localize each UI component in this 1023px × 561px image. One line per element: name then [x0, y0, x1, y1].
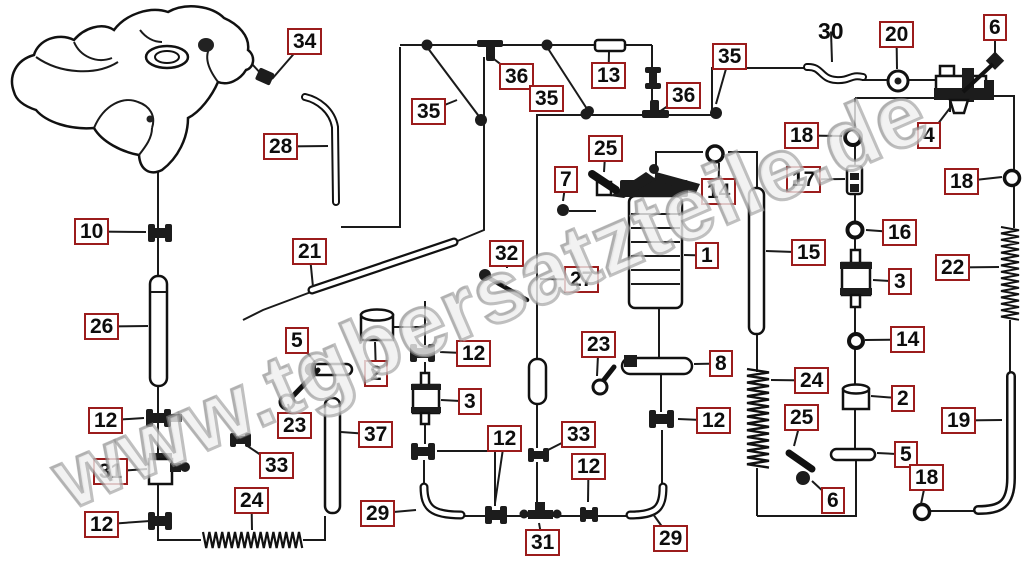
grommet-12-col-lower	[411, 443, 435, 460]
part-17	[847, 166, 862, 194]
tube-37	[325, 398, 340, 513]
spring-24-right	[747, 369, 769, 468]
union-31-left	[149, 453, 190, 484]
check-fitting	[645, 67, 661, 89]
elbow-29-left	[424, 487, 461, 515]
screw-32	[479, 269, 527, 300]
tank-cap	[146, 46, 188, 68]
bushing-2-right	[843, 385, 869, 410]
spring-22	[1001, 227, 1019, 320]
tee-31-center	[520, 502, 562, 519]
grommet-12-col-upper	[410, 344, 435, 362]
band-8	[622, 355, 692, 374]
parts-diagram: 3428102612311224332321523712312293133122…	[0, 0, 1023, 561]
ring-14	[849, 334, 863, 348]
ring-20	[888, 71, 908, 91]
tank-filler-detail	[198, 38, 214, 52]
grommet-12-left-lower	[148, 512, 172, 530]
ring-18-right	[1005, 171, 1020, 186]
hose-30	[807, 67, 863, 80]
elbow-29-right	[630, 487, 663, 515]
grommet-12-bottom-left	[485, 506, 507, 524]
bolt-23-left	[280, 370, 318, 409]
clip-fittings	[422, 40, 723, 127]
grommet-33-center	[528, 448, 549, 462]
tube-21	[312, 242, 454, 290]
valve-13	[595, 40, 625, 51]
ring-16	[848, 223, 863, 238]
tube-19	[978, 376, 1011, 510]
grommet-18-top	[845, 129, 861, 145]
clamp-2-left	[361, 310, 393, 341]
tube-15	[749, 188, 764, 334]
ring-18-bottom	[915, 505, 930, 520]
grommet-33-left	[230, 433, 251, 447]
diagram-artwork	[0, 0, 1023, 561]
washer-5-right	[831, 449, 875, 460]
grommet-12-bottom-mid	[580, 507, 598, 522]
filter-3-right	[840, 250, 872, 307]
hose-28	[305, 97, 336, 202]
hose-end-cap	[529, 359, 546, 404]
spring-24-left	[203, 532, 302, 548]
ring-14-canister	[707, 146, 723, 162]
grommet-10	[148, 224, 172, 242]
grommet-12-left-upper	[146, 409, 182, 427]
fuel-tank-drawing	[12, 6, 253, 172]
tee-36-left	[477, 40, 503, 61]
bolt-7	[557, 204, 569, 216]
bolt-25-right	[789, 453, 812, 485]
filter-3-left	[411, 373, 441, 424]
bolt-23-center	[593, 367, 614, 394]
grommet-12-right-col	[649, 410, 674, 428]
